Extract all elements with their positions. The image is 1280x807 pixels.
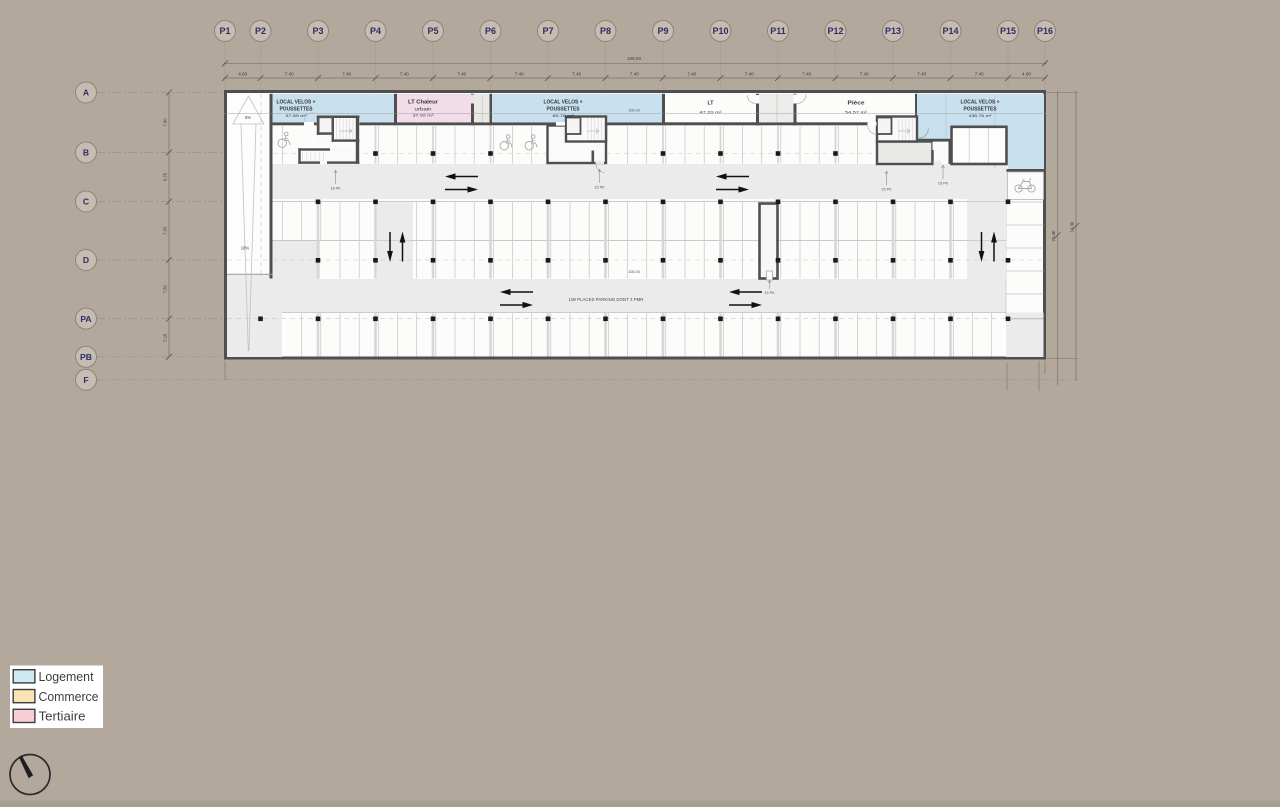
svg-text:P4: P4	[370, 26, 381, 36]
svg-text:P3: P3	[312, 26, 323, 36]
svg-text:Logement: Logement	[39, 669, 94, 684]
svg-text:P10: P10	[712, 26, 728, 36]
svg-text:Pièce: Pièce	[848, 101, 865, 107]
svg-text:7.40: 7.40	[687, 72, 696, 77]
svg-text:POUSSETTES: POUSSETTES	[964, 107, 998, 113]
svg-text:P2: P2	[255, 26, 266, 36]
svg-text:B: B	[83, 148, 89, 158]
svg-text:7.40: 7.40	[745, 72, 754, 77]
svg-text:18 PK: 18 PK	[330, 187, 341, 191]
svg-text:108.00: 108.00	[628, 270, 640, 274]
svg-text:108.00: 108.00	[628, 109, 640, 113]
svg-text:P1: P1	[219, 26, 230, 36]
svg-text:P14: P14	[942, 26, 958, 36]
svg-text:37.92 m²: 37.92 m²	[413, 113, 435, 118]
svg-text:108 PLACES PARKING DONT 3 PMR: 108 PLACES PARKING DONT 3 PMR	[569, 297, 645, 302]
svg-text:PA: PA	[80, 314, 91, 324]
svg-text:54.57 m²: 54.57 m²	[845, 110, 868, 115]
svg-text:D: D	[83, 255, 89, 265]
svg-text:16%: 16%	[241, 246, 250, 251]
svg-text:Commerce: Commerce	[39, 689, 99, 704]
svg-text:7.40: 7.40	[400, 72, 409, 77]
svg-text:26.40: 26.40	[1051, 230, 1056, 242]
svg-text:P11: P11	[770, 26, 786, 36]
svg-text:7.40: 7.40	[630, 72, 639, 77]
svg-text:7.50: 7.50	[163, 285, 168, 294]
svg-text:438.76 m²: 438.76 m²	[969, 113, 993, 118]
svg-text:106.00: 106.00	[627, 56, 641, 61]
svg-text:P15: P15	[1000, 26, 1016, 36]
svg-text:6.25: 6.25	[163, 172, 168, 181]
svg-text:5.15: 5.15	[163, 333, 168, 342]
svg-text:47.20 m²: 47.20 m²	[700, 110, 723, 115]
svg-text:5%: 5%	[245, 115, 251, 120]
svg-text:7.40: 7.40	[572, 72, 581, 77]
svg-text:P5: P5	[427, 26, 438, 36]
svg-text:P9: P9	[657, 26, 668, 36]
svg-text:7.40: 7.40	[917, 72, 926, 77]
svg-text:34.30: 34.30	[1069, 221, 1074, 233]
svg-text:LOCAL VELOS +: LOCAL VELOS +	[544, 100, 583, 106]
svg-text:4.90: 4.90	[1022, 72, 1031, 77]
svg-text:89.76 m²: 89.76 m²	[553, 113, 575, 118]
svg-text:7.50: 7.50	[163, 226, 168, 235]
svg-text:P7: P7	[542, 26, 553, 36]
svg-text:LT: LT	[708, 101, 715, 107]
svg-text:POUSSETTES: POUSSETTES	[547, 107, 581, 113]
svg-text:7.40: 7.40	[285, 72, 294, 77]
svg-text:C: C	[83, 197, 89, 207]
svg-text:7.90: 7.90	[163, 118, 168, 127]
svg-text:LOCAL VELOS +: LOCAL VELOS +	[961, 100, 1000, 106]
svg-text:P16: P16	[1037, 26, 1053, 36]
svg-text:7.40: 7.40	[802, 72, 811, 77]
svg-text:15 PK: 15 PK	[764, 291, 775, 295]
svg-text:7.40: 7.40	[342, 72, 351, 77]
svg-text:15 PK: 15 PK	[881, 188, 892, 192]
svg-text:PB: PB	[80, 352, 92, 362]
svg-text:P8: P8	[600, 26, 611, 36]
svg-text:P6: P6	[485, 26, 496, 36]
svg-text:7.40: 7.40	[457, 72, 466, 77]
svg-text:15 PK: 15 PK	[938, 182, 949, 186]
svg-text:15 PK: 15 PK	[594, 186, 605, 190]
svg-text:97.89 m²: 97.89 m²	[286, 113, 308, 118]
svg-text:7.40: 7.40	[975, 72, 984, 77]
svg-text:F: F	[83, 375, 88, 385]
svg-text:P12: P12	[827, 26, 843, 36]
svg-text:LOCAL VELOS +: LOCAL VELOS +	[277, 100, 316, 106]
svg-text:Tertiaire: Tertiaire	[39, 709, 86, 724]
svg-text:P13: P13	[885, 26, 901, 36]
svg-text:A: A	[83, 88, 89, 98]
svg-text:7.40: 7.40	[515, 72, 524, 77]
svg-text:POUSSETTES: POUSSETTES	[280, 107, 314, 113]
svg-text:4.60: 4.60	[238, 72, 247, 77]
svg-text:7.40: 7.40	[860, 72, 869, 77]
svg-text:LT Chaleur: LT Chaleur	[408, 100, 438, 106]
